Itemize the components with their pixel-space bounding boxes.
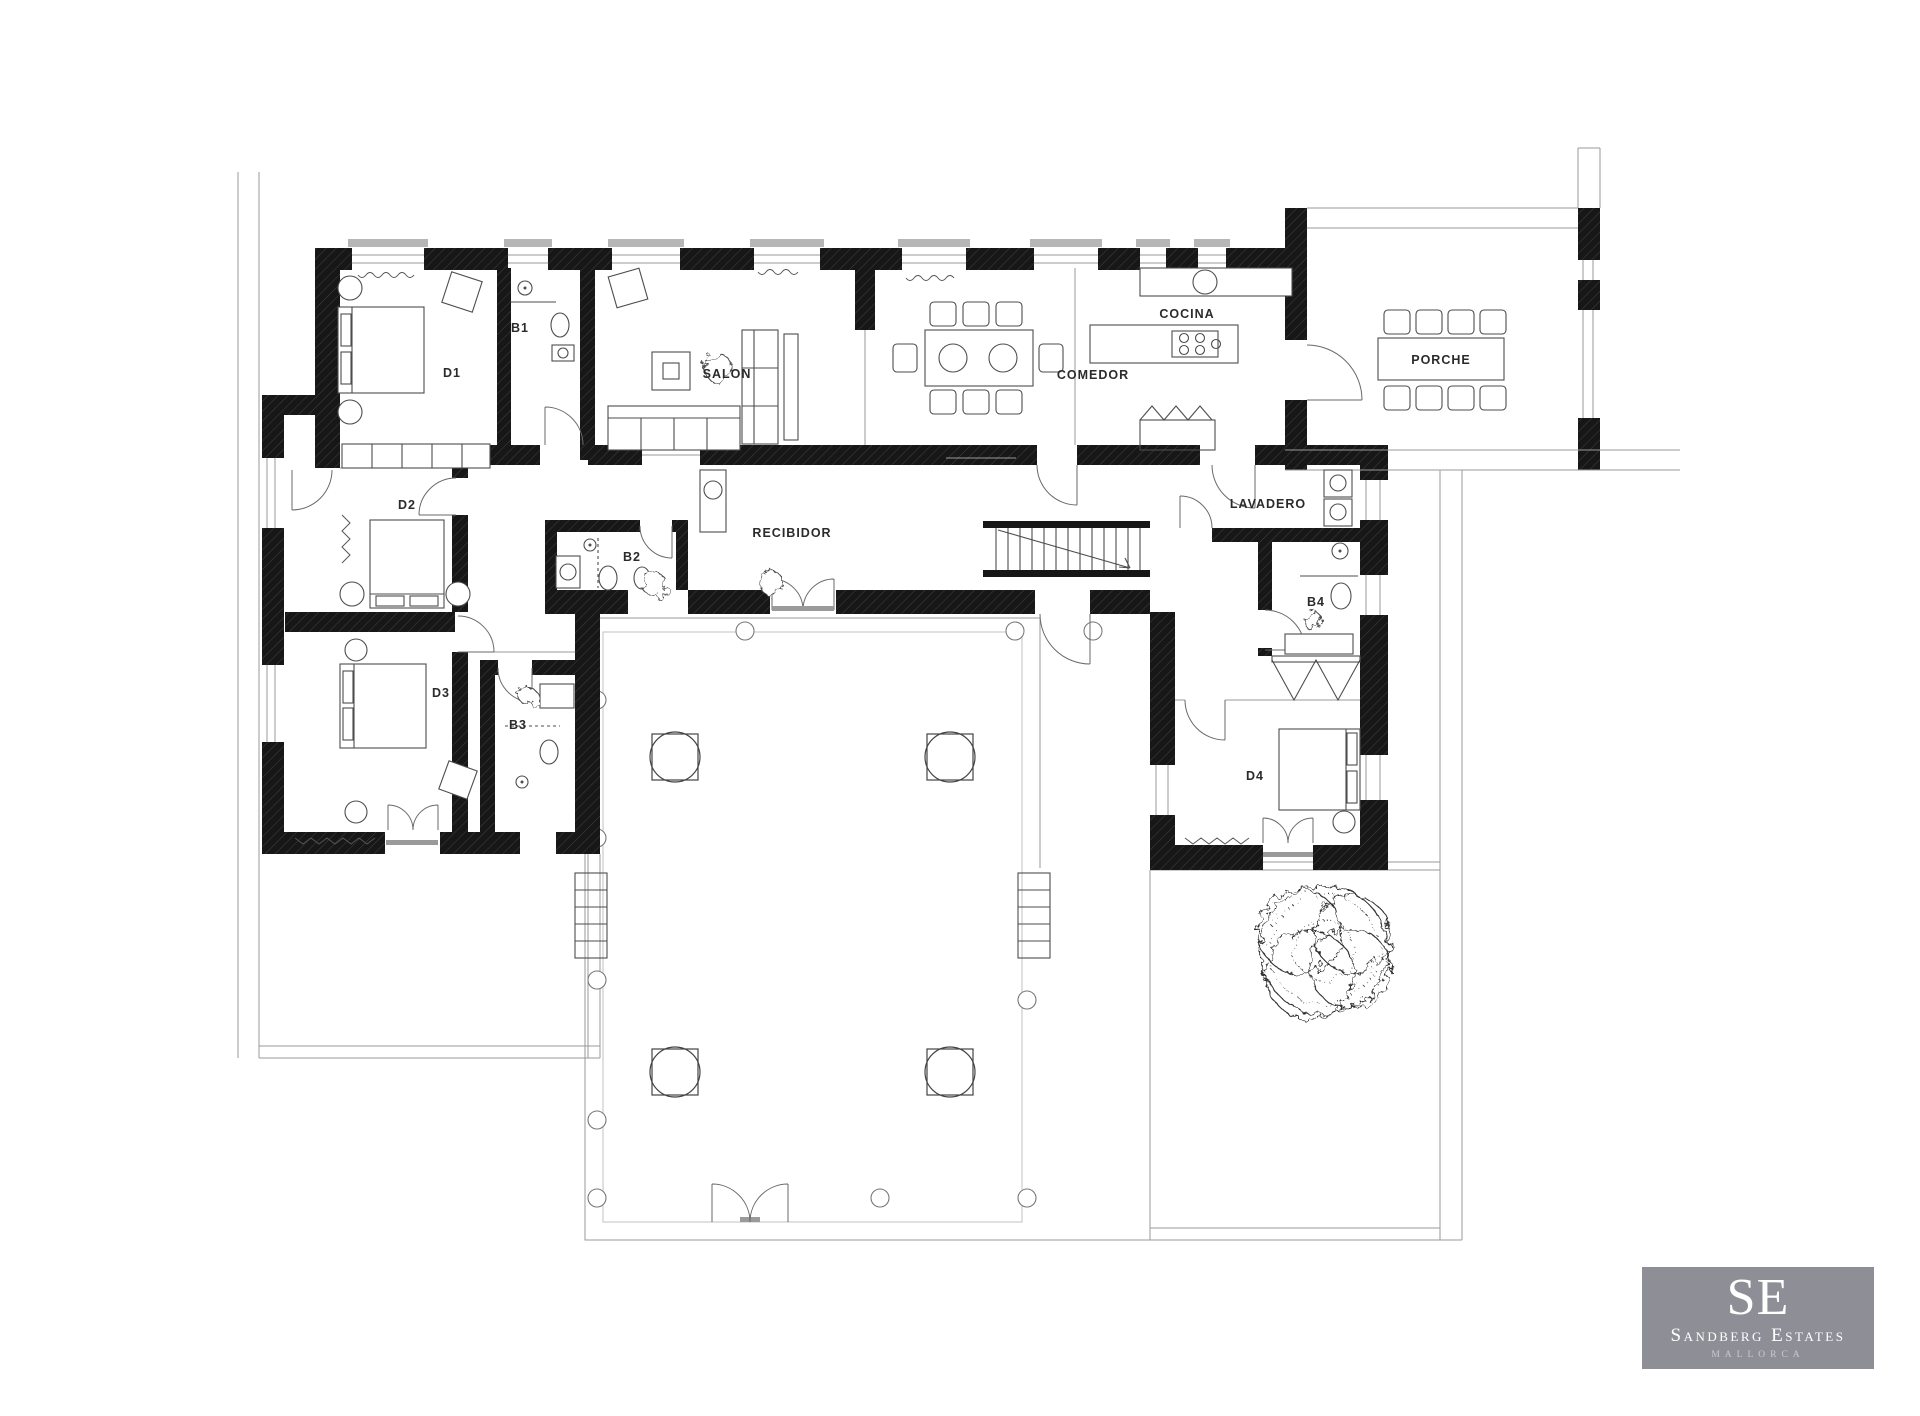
door-d2 — [419, 478, 456, 515]
door-comedor-hall — [1037, 465, 1077, 505]
tree — [1258, 886, 1390, 1019]
room-label-b3: B3 — [509, 718, 527, 732]
window-sills — [348, 239, 1230, 247]
furniture-comedor — [893, 302, 1063, 414]
room-label-salon: SALON — [703, 367, 752, 381]
bathroom-b2-fixtures — [556, 538, 650, 590]
agency-logo-name: Sandberg Estates — [1671, 1325, 1846, 1347]
courtyard-terrace — [575, 618, 1462, 1240]
courtyard-outline — [585, 618, 1462, 1240]
staircase — [983, 521, 1150, 577]
furniture-d1 — [338, 272, 490, 468]
door-d3-south-fans — [388, 805, 438, 830]
courtyard-pillars — [650, 732, 975, 1097]
room-label-d2: D2 — [398, 498, 416, 512]
courtyard-inner-floor — [603, 632, 1022, 1222]
door-lavadero — [1180, 496, 1212, 528]
door-d4-north — [1185, 700, 1225, 740]
room-label-cocina: COCINA — [1159, 307, 1214, 321]
room-label-d1: D1 — [443, 366, 461, 380]
room-label-recibidor: RECIBIDOR — [752, 526, 831, 540]
furniture-d2 — [340, 515, 470, 608]
courtyard-trellis-right — [1018, 873, 1050, 958]
tree-patio-outline — [1150, 862, 1440, 1240]
door-d3 — [458, 616, 494, 652]
room-label-comedor: COMEDOR — [1057, 368, 1129, 382]
door-b2 — [640, 526, 672, 558]
room-label-b1: B1 — [511, 321, 529, 335]
room-label-porche: PORCHE — [1411, 353, 1470, 367]
room-label-d4: D4 — [1246, 769, 1264, 783]
furniture-d4 — [1185, 656, 1360, 844]
stair-direction-arrow — [998, 530, 1130, 568]
furniture-salon — [608, 268, 798, 450]
lavadero-appliances — [1324, 470, 1352, 526]
agency-logo: SE Sandberg Estates MALLORCA — [1642, 1267, 1874, 1369]
courtyard-trellis-left — [575, 873, 607, 958]
room-label-b2: B2 — [623, 550, 641, 564]
furniture-d3 — [295, 639, 477, 844]
courtyard-columns — [588, 622, 1102, 1207]
courtyard-entrance-door — [712, 1184, 788, 1222]
door-d4-south-fans — [1263, 818, 1313, 843]
agency-logo-location: MALLORCA — [1711, 1350, 1804, 1360]
door-d2-hall — [292, 470, 332, 510]
closet-folding-doors — [1272, 660, 1360, 700]
door-b1 — [545, 407, 583, 445]
door-courtyard-stairs — [1040, 614, 1090, 664]
room-label-lavadero: LAVADERO — [1230, 497, 1306, 511]
door-porch — [1307, 345, 1362, 400]
bathroom-b3-fixtures — [505, 684, 574, 788]
sideboard-folding — [1140, 406, 1212, 420]
room-label-b4: B4 — [1307, 595, 1325, 609]
furniture-cocina — [1090, 268, 1292, 450]
room-label-d3: D3 — [432, 686, 450, 700]
agency-logo-initials: SE — [1727, 1276, 1790, 1320]
floor-plan: D1 B1 SALON COMEDOR COCINA PORCHE RECIBI… — [0, 0, 1920, 1416]
